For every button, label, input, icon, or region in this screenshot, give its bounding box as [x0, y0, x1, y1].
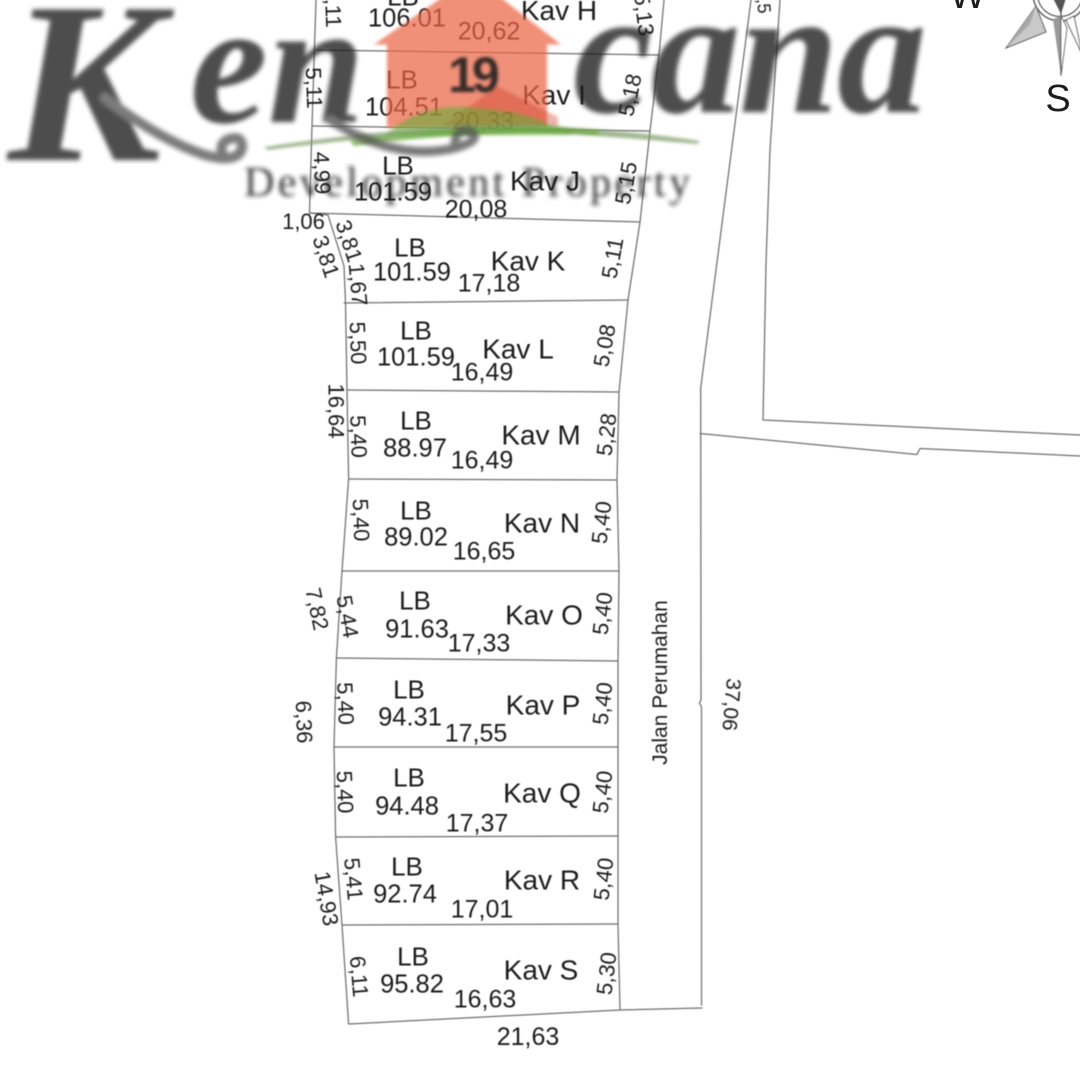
svg-text:16,65: 16,65 — [453, 537, 516, 565]
svg-text:5,40: 5,40 — [586, 500, 616, 546]
svg-text:K: K — [6, 0, 175, 210]
svg-text:17,55: 17,55 — [445, 719, 508, 747]
svg-text:LB: LB — [393, 763, 425, 793]
svg-text:Kav P: Kav P — [506, 690, 581, 721]
svg-text:5,40: 5,40 — [587, 769, 617, 815]
svg-text:LB: LB — [399, 586, 431, 616]
svg-text:LB: LB — [393, 675, 425, 705]
svg-text:6,36: 6,36 — [291, 700, 317, 744]
svg-text:21,63: 21,63 — [497, 1023, 560, 1051]
svg-text:1,06: 1,06 — [282, 209, 325, 234]
svg-text:LB: LB — [400, 406, 432, 436]
svg-text:Development Property: Development Property — [244, 160, 693, 206]
svg-text:16,63: 16,63 — [454, 985, 517, 1013]
svg-text:5,50: 5,50 — [345, 321, 371, 365]
svg-text:LB: LB — [391, 852, 423, 882]
svg-text:17,37: 17,37 — [446, 809, 509, 837]
svg-text:16,64: 16,64 — [324, 383, 349, 438]
svg-text:19: 19 — [448, 47, 498, 103]
svg-text:5,40: 5,40 — [332, 682, 358, 726]
svg-text:91.63: 91.63 — [385, 615, 449, 643]
svg-text:5,40: 5,40 — [348, 498, 374, 542]
svg-text:LB: LB — [397, 942, 429, 972]
svg-text:94.31: 94.31 — [378, 703, 442, 731]
svg-text:92.74: 92.74 — [373, 880, 437, 908]
svg-text:5,40: 5,40 — [332, 770, 358, 814]
svg-text:Kav O: Kav O — [505, 600, 583, 631]
svg-text:Kav S: Kav S — [504, 955, 579, 986]
svg-text:5,40: 5,40 — [587, 681, 617, 727]
svg-text:W: W — [950, 0, 986, 17]
svg-text:S: S — [1045, 78, 1070, 120]
svg-text:101.59: 101.59 — [373, 258, 451, 286]
svg-text:6,11: 6,11 — [345, 955, 373, 998]
svg-text:37,06: 37,06 — [717, 677, 744, 731]
svg-text:17,01: 17,01 — [451, 895, 514, 923]
svg-text:101.59: 101.59 — [377, 343, 455, 371]
svg-text:5,28: 5,28 — [591, 412, 621, 458]
svg-text:Kav R: Kav R — [504, 865, 580, 896]
svg-text:16,49: 16,49 — [451, 358, 514, 386]
svg-text:Kav Q: Kav Q — [503, 778, 581, 809]
svg-text:89.02: 89.02 — [384, 523, 448, 551]
svg-text:17,33: 17,33 — [448, 629, 511, 657]
svg-text:LB: LB — [400, 496, 432, 526]
svg-text:1,67: 1,67 — [344, 262, 373, 307]
svg-text:16,49: 16,49 — [451, 446, 514, 474]
svg-text:17,18: 17,18 — [458, 269, 521, 297]
svg-text:95.82: 95.82 — [380, 970, 444, 998]
svg-text:Jalan Perumahan: Jalan Perumahan — [649, 600, 672, 765]
svg-text:5,30: 5,30 — [591, 951, 621, 997]
svg-text:5,40: 5,40 — [587, 591, 617, 637]
svg-text:88.97: 88.97 — [383, 434, 447, 462]
svg-text:94.48: 94.48 — [375, 792, 439, 820]
svg-text:en: en — [190, 0, 365, 160]
svg-text:LB: LB — [400, 316, 432, 346]
svg-text:Kav N: Kav N — [504, 508, 580, 539]
svg-text:cana: cana — [573, 0, 925, 151]
svg-text:5,40: 5,40 — [588, 856, 618, 902]
svg-text:5,41: 5,41 — [339, 857, 368, 902]
